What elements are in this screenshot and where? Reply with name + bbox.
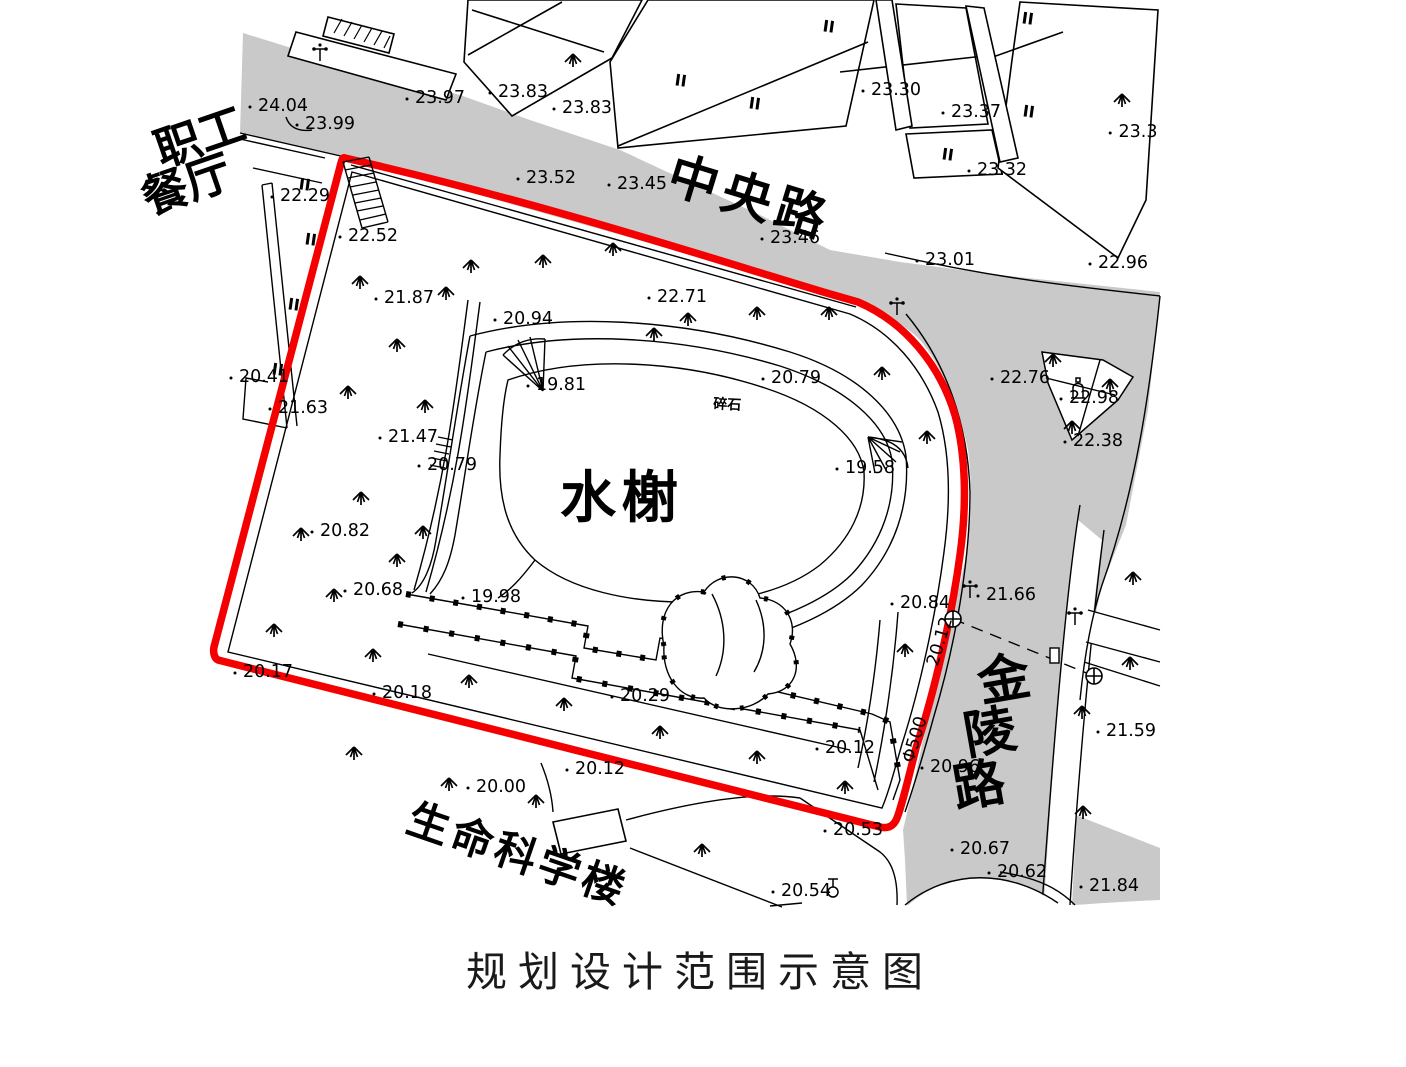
- tree-icon: [389, 554, 405, 567]
- survey-point-dot: [494, 319, 497, 322]
- elevation-label: 20.17: [243, 662, 293, 682]
- elevation-label: 20.54: [781, 881, 831, 901]
- elevation-label: 21.47: [388, 427, 438, 447]
- survey-point-dot: [271, 196, 274, 199]
- tree-icon: [352, 276, 368, 289]
- elevation-label: 23.37: [951, 102, 1001, 122]
- tree-icon: [897, 644, 913, 657]
- tree-icon: [749, 751, 765, 764]
- survey-point-dot: [991, 378, 994, 381]
- survey-point-dot: [648, 297, 651, 300]
- elevation-label: 20.68: [353, 580, 403, 600]
- tree-icon: [535, 255, 551, 268]
- survey-point-dot: [234, 672, 237, 675]
- survey-point-dot: [344, 590, 347, 593]
- survey-point-dot: [772, 891, 775, 894]
- survey-point-dot: [988, 872, 991, 875]
- survey-point-dot: [230, 377, 233, 380]
- survey-point-dot: [373, 693, 376, 696]
- survey-point-dot: [489, 92, 492, 95]
- elevation-label: 23.83: [498, 82, 548, 102]
- site-plan-map: 职工餐厅中央路金陵路生命科学楼水榭碎石24.0423.9923.9723.832…: [0, 0, 1406, 1067]
- survey-point-dot: [942, 112, 945, 115]
- place-label: 碎石: [713, 395, 742, 413]
- tree-icon: [326, 589, 342, 602]
- elevation-label: 21.63: [278, 398, 328, 418]
- survey-point-dot: [1064, 441, 1067, 444]
- elevation-label: 23.32: [977, 160, 1027, 180]
- place-label: 生命科学楼: [401, 794, 634, 915]
- elevation-label: 21.59: [1106, 721, 1156, 741]
- survey-point-dot: [1097, 731, 1100, 734]
- survey-point-dot: [527, 385, 530, 388]
- survey-point-dot: [467, 787, 470, 790]
- survey-point-dot: [517, 178, 520, 181]
- survey-point-dot: [462, 597, 465, 600]
- tree-icon: [874, 367, 890, 380]
- tree-icon: [461, 675, 477, 688]
- tree-icon: [340, 386, 356, 399]
- elevation-label: 19.58: [845, 458, 895, 478]
- survey-point-dot: [762, 378, 765, 381]
- elevation-label: 22.76: [1000, 368, 1050, 388]
- survey-point-dot: [1080, 886, 1083, 889]
- tree-icon: [1125, 572, 1141, 585]
- tree-icon: [528, 795, 544, 808]
- elevation-label: 22.98: [1069, 388, 1119, 408]
- survey-point-dot: [269, 408, 272, 411]
- survey-point-dot: [406, 98, 409, 101]
- elevation-label: 23.52: [526, 168, 576, 188]
- place-label: 水榭: [560, 466, 684, 531]
- elevation-label: 23.3: [1119, 122, 1158, 142]
- elevation-label: 20.96: [930, 757, 980, 777]
- elevation-label: 23.45: [617, 174, 667, 194]
- tree-icon: [441, 778, 457, 791]
- elevation-label: 20.00: [476, 777, 526, 797]
- elevation-label: 19.81: [536, 375, 586, 395]
- utility-box: [1050, 648, 1059, 663]
- elevation-label: 23.46: [770, 228, 820, 248]
- elevation-label: 20.18: [382, 683, 432, 703]
- tree-icon: [417, 400, 433, 413]
- survey-point-dot: [375, 298, 378, 301]
- survey-point-dot: [608, 184, 611, 187]
- survey-point-dot: [296, 124, 299, 127]
- map-title: 规划设计范围示意图: [466, 938, 934, 998]
- survey-point-dot: [977, 595, 980, 598]
- site-plan-page: 职工餐厅中央路金陵路生命科学楼水榭碎石24.0423.9923.9723.832…: [0, 0, 1406, 1067]
- elevation-label: 20.82: [320, 521, 370, 541]
- tree-icon: [652, 726, 668, 739]
- survey-point-dot: [311, 531, 314, 534]
- tree-icon: [438, 287, 454, 300]
- elevation-label: 23.30: [871, 80, 921, 100]
- tree-icon: [749, 307, 765, 320]
- survey-point-dot: [968, 170, 971, 173]
- tree-icon: [837, 781, 853, 794]
- elevation-label: 23.01: [925, 250, 975, 270]
- manhole-icon: [1086, 668, 1102, 684]
- elevation-label: 21.66: [986, 585, 1036, 605]
- survey-point-dot: [816, 748, 819, 751]
- tree-icon: [646, 328, 662, 341]
- tree-icon: [389, 339, 405, 352]
- elevation-label: 20.53: [833, 820, 883, 840]
- survey-point-dot: [1109, 132, 1112, 135]
- elevation-label: 23.97: [415, 88, 465, 108]
- survey-point-dot: [761, 238, 764, 241]
- elevation-label: 20.79: [427, 455, 477, 475]
- elevation-label: 23.83: [562, 98, 612, 118]
- elevation-label: 20.29: [620, 686, 670, 706]
- survey-point-dot: [566, 769, 569, 772]
- elevation-label: 22.38: [1073, 431, 1123, 451]
- survey-point-dot: [1089, 263, 1092, 266]
- tree-icon: [680, 313, 696, 326]
- survey-point-dot: [249, 106, 252, 109]
- elevation-label: 20.67: [960, 839, 1010, 859]
- tree-icon: [293, 528, 309, 541]
- survey-point-dot: [916, 260, 919, 263]
- tree-icon: [365, 649, 381, 662]
- elevation-label: 22.96: [1098, 253, 1148, 273]
- survey-point-dot: [1060, 398, 1063, 401]
- tree-icon: [919, 431, 935, 444]
- survey-point-dot: [862, 90, 865, 93]
- elevation-label: 20.12: [825, 738, 875, 758]
- place-label: 餐厅: [135, 144, 240, 225]
- elevation-label: 21.87: [384, 288, 434, 308]
- bottom-lines: [626, 796, 897, 907]
- elevation-label: 20.62: [997, 862, 1047, 882]
- survey-point-dot: [921, 767, 924, 770]
- tree-icon: [266, 624, 282, 637]
- elevation-label: 21.84: [1089, 876, 1139, 896]
- tree-icon: [346, 747, 362, 760]
- elevation-label: 20.12: [575, 759, 625, 779]
- elevation-label: 20.79: [771, 368, 821, 388]
- survey-point-dot: [379, 437, 382, 440]
- tree-icon: [353, 492, 369, 505]
- elevation-label: 22.71: [657, 287, 707, 307]
- elevation-label: 24.04: [258, 96, 308, 116]
- survey-point-dot: [611, 696, 614, 699]
- tree-icon: [694, 844, 710, 857]
- survey-point-dot: [951, 849, 954, 852]
- elevation-label: 22.52: [348, 226, 398, 246]
- tree-icon: [463, 260, 479, 273]
- survey-point-dot: [339, 236, 342, 239]
- elevation-label: 23.99: [305, 114, 355, 134]
- survey-point-dot: [553, 108, 556, 111]
- survey-point-dot: [418, 465, 421, 468]
- elevation-label: 20.94: [503, 309, 553, 329]
- tree-icon: [1122, 657, 1138, 670]
- survey-point-dot: [891, 603, 894, 606]
- dock-peninsula: [662, 577, 796, 709]
- survey-point-dot: [824, 830, 827, 833]
- survey-point-dot: [836, 468, 839, 471]
- elevation-label: 20.84: [900, 593, 950, 613]
- tree-icon: [556, 698, 572, 711]
- elevation-label: 19.98: [471, 587, 521, 607]
